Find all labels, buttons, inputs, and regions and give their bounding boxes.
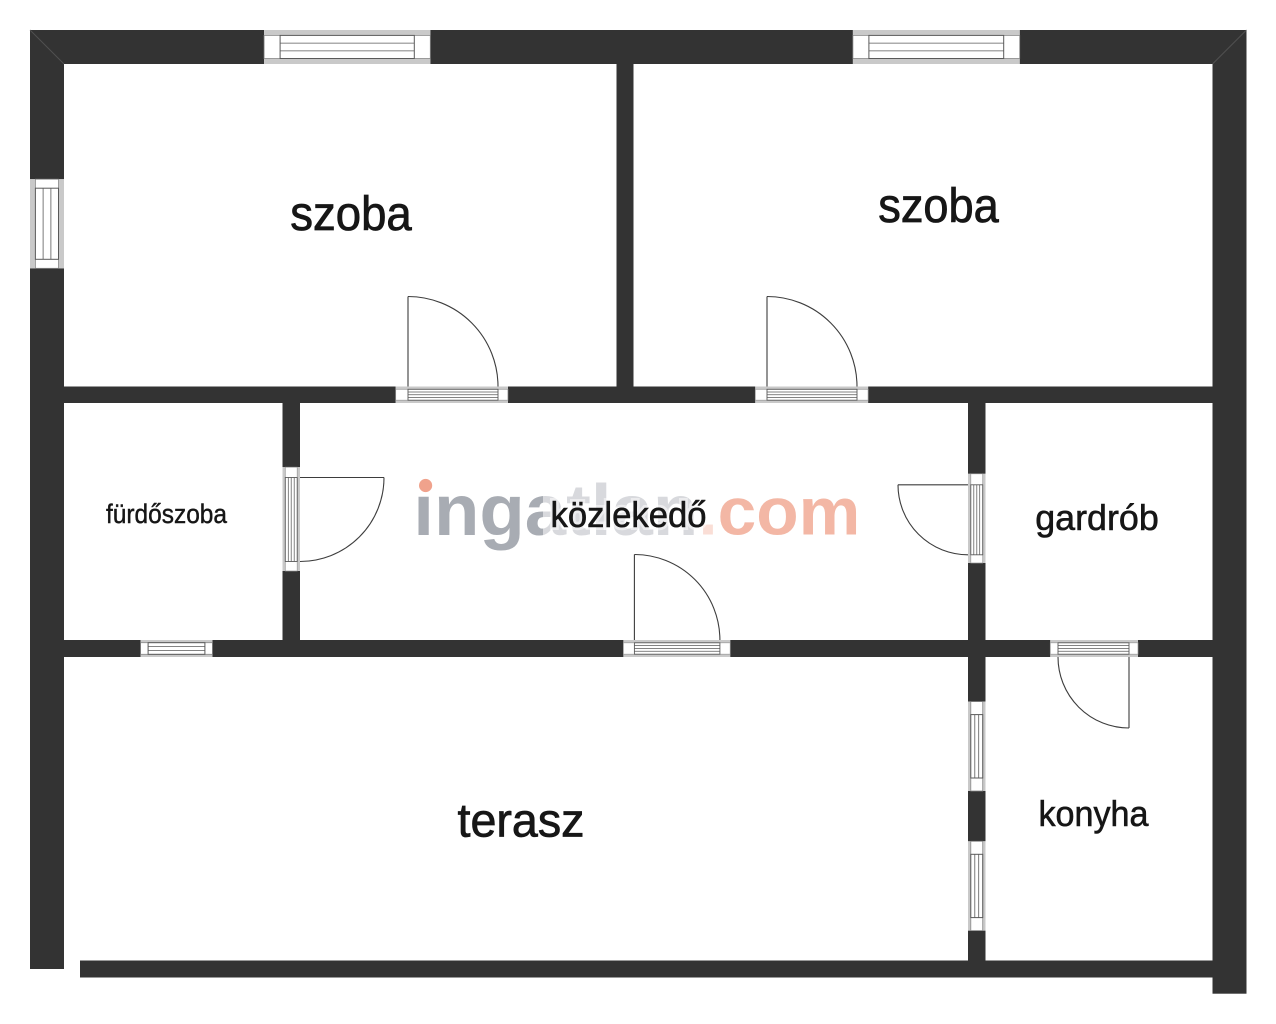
svg-text:terasz: terasz xyxy=(458,794,585,847)
svg-text:.com: .com xyxy=(698,476,860,550)
svg-text:konyha: konyha xyxy=(1039,793,1150,834)
svg-text:szoba: szoba xyxy=(290,188,412,241)
svg-text:szoba: szoba xyxy=(878,180,999,233)
svg-text:közlekedő: közlekedő xyxy=(551,494,707,535)
svg-text:fürdőszoba: fürdőszoba xyxy=(106,499,228,529)
svg-text:gardrób: gardrób xyxy=(1035,497,1159,538)
